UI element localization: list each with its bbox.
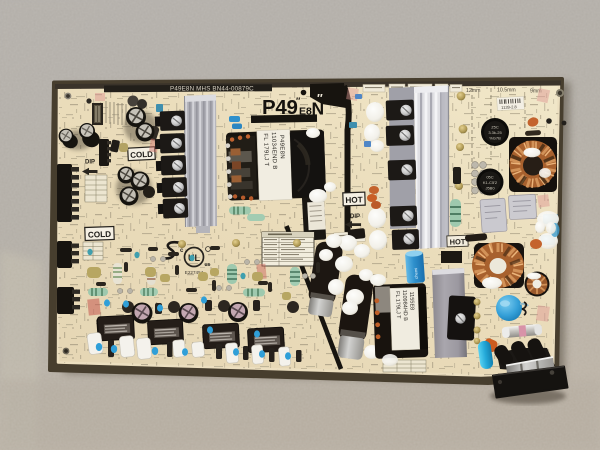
- svg-text:P49E8N: P49E8N: [278, 135, 285, 159]
- svg-text:1139-2.8: 1139-2.8: [501, 104, 518, 110]
- svg-text:us: us: [205, 262, 211, 268]
- svg-text:DIP: DIP: [350, 214, 360, 220]
- svg-text:DIP: DIP: [85, 160, 95, 166]
- svg-text:K1-C5'2: K1-C5'2: [483, 180, 498, 185]
- svg-text:Z5C: Z5C: [491, 125, 499, 130]
- svg-text:HOT: HOT: [345, 195, 363, 205]
- svg-text:3.3k-25: 3.3k-25: [488, 130, 502, 135]
- svg-text:12mm: 12mm: [466, 88, 480, 94]
- svg-text:1155E8: 1155E8: [408, 291, 415, 310]
- svg-text:J5B0: J5B0: [485, 186, 495, 191]
- svg-text:P49E8N MHS BN44-00879C: P49E8N MHS BN44-00879C: [170, 85, 254, 92]
- svg-text:HOT: HOT: [450, 237, 466, 247]
- svg-text:05C: 05C: [486, 175, 493, 180]
- svg-text:COLD: COLD: [88, 230, 112, 240]
- svg-text:FL 179LJ T: FL 179LJ T: [394, 291, 401, 319]
- svg-text:FL 179LJ T: FL 179LJ T: [262, 133, 269, 166]
- svg-text:chemi: chemi: [413, 268, 419, 280]
- svg-text:%G7B: %G7B: [489, 136, 501, 141]
- svg-text:110984HD B: 110984HD B: [401, 290, 408, 322]
- svg-text:E8: E8: [299, 106, 312, 118]
- svg-text:P49: P49: [262, 96, 298, 119]
- svg-text:″: ″: [317, 92, 323, 106]
- svg-text:10.5mm: 10.5mm: [497, 88, 516, 94]
- svg-text:″: ″: [296, 96, 301, 106]
